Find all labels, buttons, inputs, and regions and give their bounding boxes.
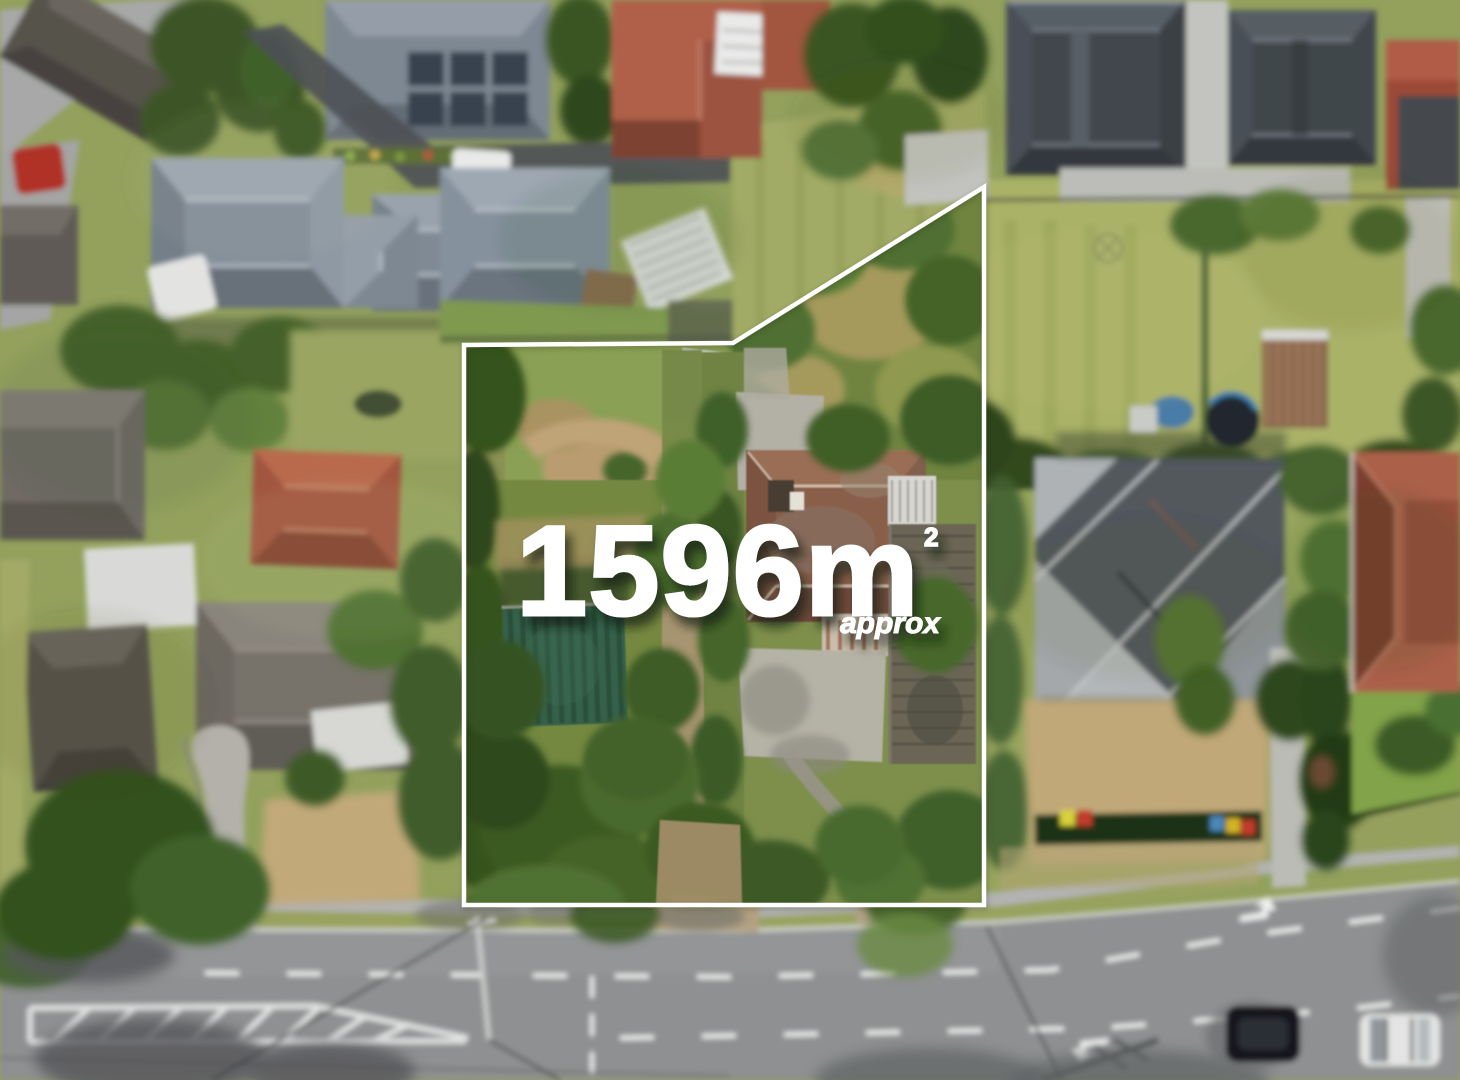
svg-text:approx: approx bbox=[840, 607, 941, 640]
svg-text:2: 2 bbox=[924, 522, 938, 552]
